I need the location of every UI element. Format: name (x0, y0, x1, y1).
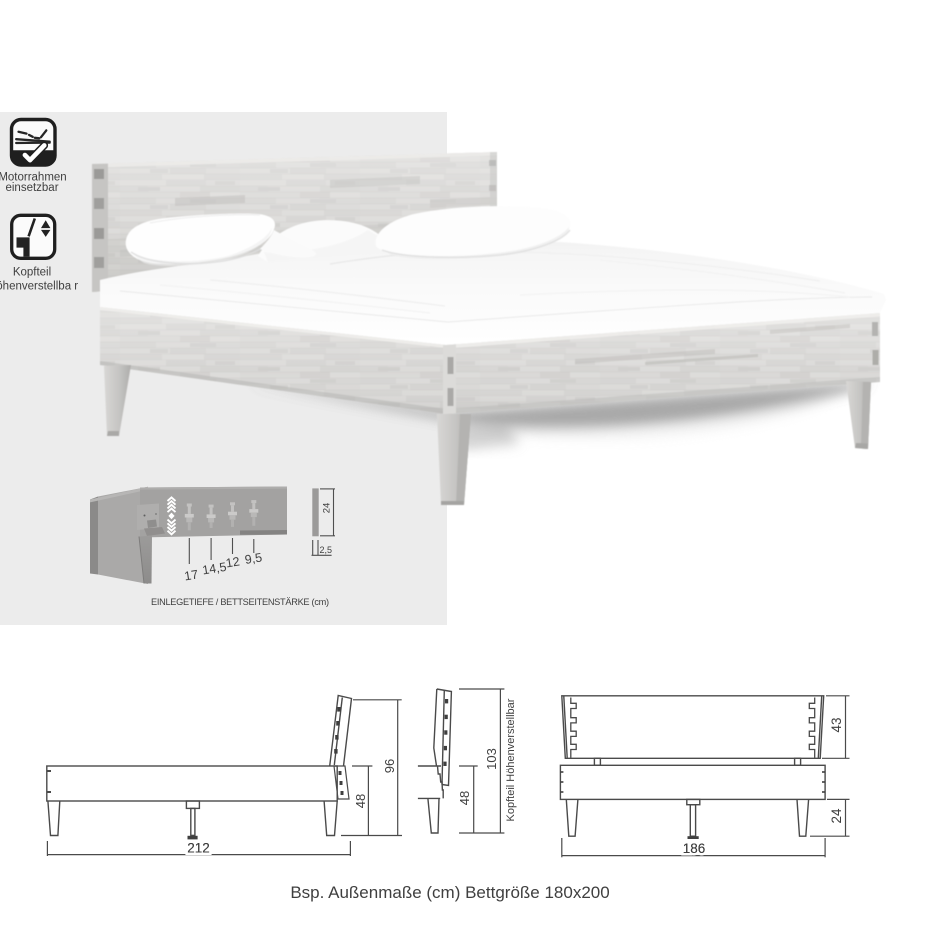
svg-text:24: 24 (829, 808, 844, 824)
svg-text:Bsp. Außenmaße (cm) Bettgröße: Bsp. Außenmaße (cm) Bettgröße 180x200 (290, 883, 609, 902)
svg-text:2,5: 2,5 (320, 545, 333, 555)
svg-text:103: 103 (484, 748, 499, 770)
svg-text:96: 96 (382, 759, 397, 773)
svg-text:Kopfteil Höhenverstellbar: Kopfteil Höhenverstellbar (505, 698, 517, 821)
svg-text:48: 48 (353, 794, 368, 808)
svg-text:186: 186 (683, 841, 706, 856)
svg-text:EINLEGETIEFE / BETTSEITENSTÄRK: EINLEGETIEFE / BETTSEITENSTÄRKE (cm) (151, 597, 329, 607)
svg-text:43: 43 (829, 717, 844, 732)
svg-text:48: 48 (457, 791, 472, 805)
svg-text:9,5: 9,5 (244, 550, 263, 567)
svg-text:12: 12 (225, 554, 241, 570)
svg-text:höhenverstellba r: höhenverstellba r (0, 281, 78, 293)
svg-text:212: 212 (187, 841, 210, 856)
svg-text:einsetzbar: einsetzbar (5, 182, 58, 194)
svg-text:24: 24 (322, 503, 333, 514)
svg-text:Kopfteil: Kopfteil (13, 267, 51, 279)
svg-text:17: 17 (183, 567, 199, 583)
